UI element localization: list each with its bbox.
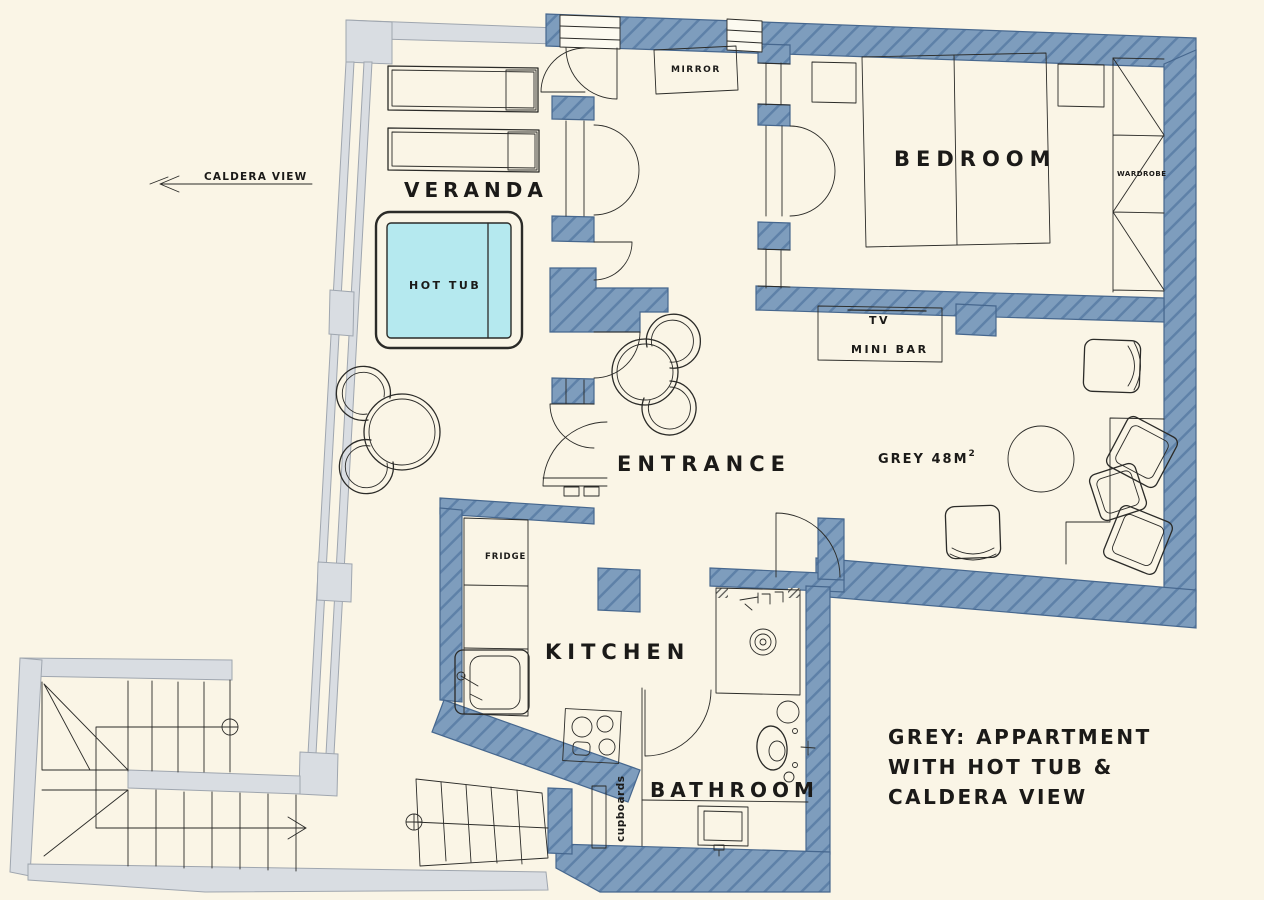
label-entrance: ENTRANCE (617, 452, 791, 476)
label-hot-tub: HOT TUB (409, 279, 481, 292)
label-veranda: VERANDA (404, 178, 548, 202)
legend-line-1: GREY: APPARTMENT (888, 725, 1152, 749)
legend-line-2: WITH HOT TUB & (888, 755, 1114, 779)
label-caldera-view: CALDERA VIEW (204, 171, 307, 183)
window-top (727, 19, 762, 52)
label-mirror: MIRROR (671, 65, 721, 75)
label-wardrobe: WARDROBE (1117, 170, 1166, 178)
label-cupboards: cupboards (615, 776, 627, 842)
label-bathroom: BATHROOM (650, 778, 819, 802)
label-bedroom: BEDROOM (894, 147, 1057, 171)
label-mini-bar: MINI BAR (851, 343, 929, 356)
label-area: GREY 48M2 (878, 449, 977, 467)
wall-hall-column (552, 96, 594, 120)
wall-bathroom-bottom (556, 844, 830, 892)
floor-plan-page: CALDERA VIEW VERANDA HOT TUB MIRROR BEDR… (0, 0, 1264, 900)
wall-pillar (598, 568, 640, 612)
legend-line-3: CALDERA VIEW (888, 785, 1088, 809)
wall-right (1164, 50, 1196, 602)
label-kitchen: KITCHEN (545, 640, 690, 664)
label-tv: TV (869, 314, 890, 327)
label-fridge: FRIDGE (485, 552, 526, 562)
wall-bedroom-left (758, 44, 790, 64)
wall-bathroom-right (806, 586, 830, 854)
floor-plan: CALDERA VIEW VERANDA HOT TUB MIRROR BEDR… (0, 0, 1264, 900)
